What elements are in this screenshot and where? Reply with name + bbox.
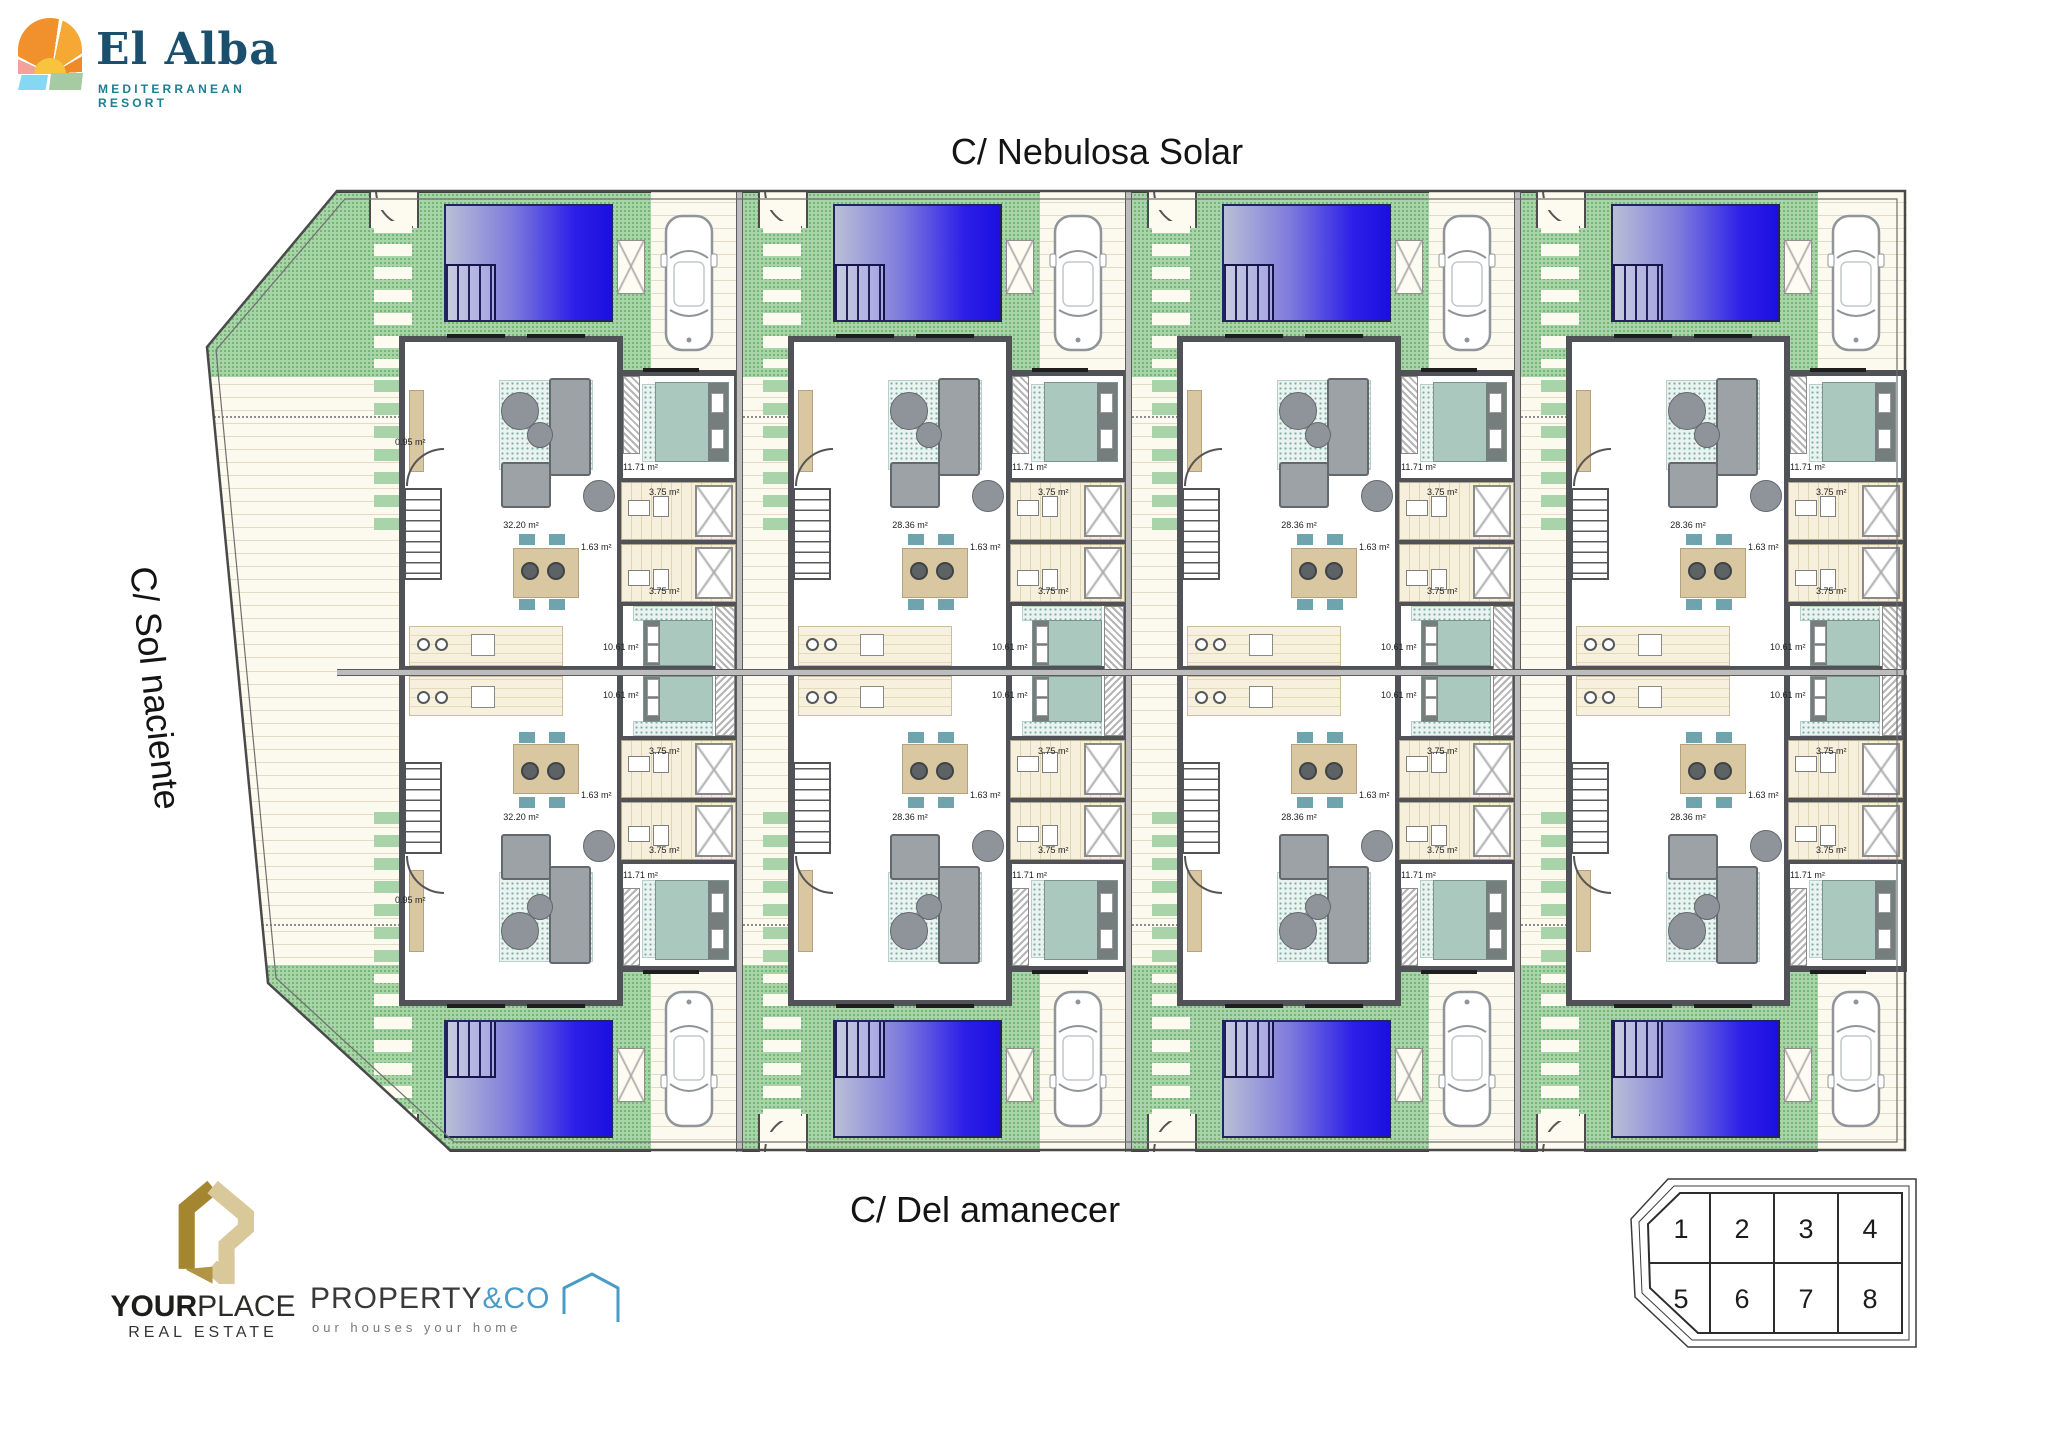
sun-lounger: [1784, 1048, 1812, 1102]
partition-wall: [1399, 798, 1514, 802]
area-label-living: 28.36 m²: [1638, 812, 1738, 822]
window: [1694, 1004, 1752, 1008]
sun-lounger: [617, 1048, 645, 1102]
place-setting: [936, 762, 954, 780]
double-bed: [655, 382, 729, 462]
double-bed: [1822, 382, 1896, 462]
side-table: [916, 894, 942, 920]
toilet: [1017, 500, 1039, 516]
street-label-south: C/ Del amanecer: [850, 1189, 1120, 1231]
plot-5: 32.20 m² 0.95 m² 11.71 m²: [207, 670, 740, 1152]
pillow: [1425, 645, 1437, 663]
stove-burner: [435, 638, 448, 651]
pool-steps: [835, 1022, 885, 1078]
parked-car-icon: [1827, 988, 1885, 1130]
wardrobe: [623, 888, 640, 966]
double-bed: [1810, 620, 1880, 666]
propertyco-name-accent: &CO: [483, 1282, 551, 1315]
wardrobe: [1012, 376, 1029, 454]
area-label-bath: 3.75 m²: [1816, 487, 1847, 497]
area-label-living: 28.36 m²: [860, 812, 960, 822]
dining-chair: [549, 534, 565, 545]
double-bed: [1433, 382, 1507, 462]
armchair: [1361, 830, 1393, 862]
dining-chair: [1686, 599, 1702, 610]
window: [1032, 368, 1088, 372]
stove-burner: [806, 638, 819, 651]
area-label-living: 28.36 m²: [1249, 812, 1349, 822]
wardrobe: [1790, 888, 1807, 966]
plot-1: 32.20 m² 0.95 m² 11.71 m²: [207, 190, 740, 672]
partition-wall: [1788, 736, 1903, 740]
bedroom-rug: [1411, 606, 1491, 621]
swimming-pool: [444, 1020, 613, 1138]
kitchen-sink: [471, 686, 495, 708]
toilet: [1406, 570, 1428, 586]
area-label-living: 28.36 m²: [1638, 520, 1738, 530]
key-plot-3: 3: [1774, 1193, 1838, 1263]
area-label-living: 32.20 m²: [471, 520, 571, 530]
partition-wall: [1010, 860, 1125, 864]
gate-door-swing: [375, 1114, 413, 1152]
yourplace-house-icon: [150, 1172, 260, 1284]
window: [916, 1004, 974, 1008]
shower-tray: [1084, 743, 1122, 795]
wardrobe: [1104, 672, 1124, 736]
dining-chair: [1297, 534, 1313, 545]
toilet: [628, 500, 650, 516]
area-label-bedroom-main: 11.71 m²: [1401, 870, 1436, 880]
place-setting: [1688, 562, 1706, 580]
pillow: [1100, 893, 1113, 913]
pool-steps: [446, 264, 496, 320]
area-label-bath: 3.75 m²: [1038, 746, 1069, 756]
wardrobe: [1401, 376, 1418, 454]
staircase: [1571, 488, 1609, 580]
sofa: [1668, 462, 1718, 508]
bedroom-rug: [1800, 606, 1880, 621]
staircase: [1182, 762, 1220, 854]
toilet: [628, 756, 650, 772]
dining-chair: [908, 599, 924, 610]
area-label-bath: 3.75 m²: [1038, 487, 1069, 497]
stove-burner: [1602, 691, 1615, 704]
toilet: [1406, 500, 1428, 516]
pillow: [1814, 698, 1826, 716]
el-alba-logo: El Alba MEDITERRANEAN RESORT: [16, 10, 316, 110]
window: [447, 334, 505, 338]
swimming-pool: [833, 204, 1002, 322]
area-label-hall: 1.63 m²: [970, 790, 1001, 800]
area-label-bedroom-main: 11.71 m²: [1790, 870, 1825, 880]
sea-band-shape: [18, 75, 48, 90]
double-bed: [1421, 620, 1491, 666]
double-bed: [1810, 676, 1880, 722]
dining-chair: [938, 599, 954, 610]
place-setting: [547, 562, 565, 580]
pillow: [647, 645, 659, 663]
wardrobe: [623, 376, 640, 454]
yourplace-subtitle: REAL ESTATE: [88, 1324, 318, 1342]
stove-burner: [1213, 638, 1226, 651]
partition-wall: [1788, 798, 1903, 802]
stove-burner: [1195, 691, 1208, 704]
parked-car-icon: [660, 988, 718, 1130]
bedroom-rug: [633, 606, 713, 621]
place-setting: [521, 562, 539, 580]
pillow: [1425, 679, 1437, 697]
window: [836, 1004, 894, 1008]
dining-chair: [938, 732, 954, 743]
swimming-pool: [833, 1020, 1002, 1138]
pillow: [647, 698, 659, 716]
key-plot-5: 5: [1652, 1263, 1710, 1333]
side-table: [1694, 894, 1720, 920]
plot-body: 28.36 m² 11.71 m²: [1129, 670, 1518, 1152]
double-bed: [1032, 676, 1102, 722]
sofa: [501, 834, 551, 880]
dining-chair: [1716, 534, 1732, 545]
dining-chair: [908, 732, 924, 743]
propertyco-name-dark: PROPERTY: [310, 1282, 483, 1315]
partition-wall: [621, 478, 736, 482]
partition-wall: [621, 602, 736, 606]
dining-chair: [1297, 797, 1313, 808]
sun-lounger: [1006, 1048, 1034, 1102]
kitchen-sink: [1638, 686, 1662, 708]
dining-chair: [1297, 599, 1313, 610]
place-setting: [910, 762, 928, 780]
area-label-bath: 3.75 m²: [1816, 845, 1847, 855]
sofa: [549, 866, 591, 964]
window: [643, 970, 699, 974]
partition-wall: [1399, 602, 1514, 606]
area-label-bath: 3.75 m²: [1816, 746, 1847, 756]
toilet: [1795, 756, 1817, 772]
shower-tray: [1862, 547, 1900, 599]
area-label-bath: 3.75 m²: [649, 845, 680, 855]
area-label-bath: 3.75 m²: [1427, 586, 1458, 596]
key-plot-1: 1: [1652, 1193, 1710, 1263]
dining-chair: [549, 797, 565, 808]
plot-key-diagram: 12345678: [1622, 1176, 1924, 1354]
party-wall-horizontal: [337, 669, 1907, 676]
swimming-pool: [1222, 204, 1391, 322]
sofa: [549, 378, 591, 476]
armchair: [583, 830, 615, 862]
area-label-bath: 3.75 m²: [1427, 845, 1458, 855]
toilet: [1406, 826, 1428, 842]
staircase: [793, 488, 831, 580]
dining-chair: [519, 599, 535, 610]
place-setting: [910, 562, 928, 580]
place-setting: [547, 762, 565, 780]
pillow: [1878, 893, 1891, 913]
area-label-bedroom-second: 10.61 m²: [1770, 642, 1806, 652]
partition-wall: [1010, 478, 1125, 482]
side-table: [916, 422, 942, 448]
staircase: [404, 488, 442, 580]
bedroom-rug: [1800, 721, 1880, 736]
plot-8: 28.36 m² 11.71 m²: [1518, 670, 1907, 1152]
place-setting: [1325, 762, 1343, 780]
pillow: [711, 929, 724, 949]
window: [1225, 1004, 1283, 1008]
area-label-hall: 1.63 m²: [581, 790, 612, 800]
stove-burner: [1213, 691, 1226, 704]
plot-3: 28.36 m² 11.71 m²: [1129, 190, 1518, 672]
window: [447, 1004, 505, 1008]
staircase: [793, 762, 831, 854]
kitchen-sink: [860, 686, 884, 708]
toilet: [1017, 570, 1039, 586]
key-plot-6: 6: [1710, 1263, 1774, 1333]
side-table: [527, 422, 553, 448]
kitchen-sink: [1638, 634, 1662, 656]
double-bed: [1433, 880, 1507, 960]
shower-tray: [1473, 547, 1511, 599]
pillow: [711, 893, 724, 913]
side-table: [1305, 422, 1331, 448]
swimming-pool: [1611, 204, 1780, 322]
wardrobe: [1790, 376, 1807, 454]
bedroom-rug: [1022, 606, 1102, 621]
wardrobe: [715, 672, 735, 736]
pillow: [1036, 698, 1048, 716]
pillow: [1489, 429, 1502, 449]
toilet: [1017, 826, 1039, 842]
area-label-bath: 3.75 m²: [649, 586, 680, 596]
area-label-living: 28.36 m²: [860, 520, 960, 530]
shower-tray: [1473, 485, 1511, 537]
side-table: [527, 894, 553, 920]
stove-burner: [417, 691, 430, 704]
shower-tray: [695, 547, 733, 599]
toilet: [1017, 756, 1039, 772]
staircase: [1182, 488, 1220, 580]
kitchen-sink: [471, 634, 495, 656]
toilet: [628, 570, 650, 586]
partition-wall: [1399, 478, 1514, 482]
key-plot-2: 2: [1710, 1193, 1774, 1263]
wardrobe: [1493, 672, 1513, 736]
shower-tray: [1084, 547, 1122, 599]
yourplace-name: YOURPLACE: [88, 1290, 318, 1324]
wardrobe: [1401, 888, 1418, 966]
pillow: [1878, 393, 1891, 413]
sofa: [1716, 866, 1758, 964]
dining-chair: [1297, 732, 1313, 743]
propertyco-tagline: our houses your home: [312, 1320, 521, 1335]
dining-chair: [1686, 797, 1702, 808]
double-bed: [1421, 676, 1491, 722]
partition-wall: [1010, 798, 1125, 802]
area-label-bedroom-main: 11.71 m²: [1401, 462, 1436, 472]
shower-tray: [1473, 743, 1511, 795]
toilet: [1795, 826, 1817, 842]
pillow: [1036, 679, 1048, 697]
place-setting: [1299, 762, 1317, 780]
area-label-bedroom-second: 10.61 m²: [992, 690, 1028, 700]
plot-body: 28.36 m² 11.71 m²: [1129, 190, 1518, 672]
pillow: [1425, 626, 1437, 644]
armchair: [1361, 480, 1393, 512]
sofa: [890, 834, 940, 880]
pillow: [1489, 893, 1502, 913]
shower-tray: [1862, 743, 1900, 795]
brand-name: El Alba: [96, 24, 279, 75]
plot-4: 28.36 m² 11.71 m²: [1518, 190, 1907, 672]
pillow: [647, 679, 659, 697]
area-label-bedroom-second: 10.61 m²: [603, 690, 639, 700]
dining-chair: [1327, 599, 1343, 610]
propertyco-house-icon: [562, 1270, 642, 1330]
shower-tray: [1084, 805, 1122, 857]
pillow: [1814, 679, 1826, 697]
pillow: [1100, 429, 1113, 449]
window: [527, 334, 585, 338]
pillow: [1036, 645, 1048, 663]
stove-burner: [1584, 638, 1597, 651]
window: [1032, 970, 1088, 974]
stove-burner: [824, 691, 837, 704]
propertyco-name: PROPERTY&CO: [310, 1282, 551, 1316]
double-bed: [643, 620, 713, 666]
area-label-hall: 1.63 m²: [1748, 790, 1779, 800]
partition-wall: [1788, 478, 1903, 482]
plot-body: 28.36 m² 11.71 m²: [1518, 670, 1907, 1152]
dining-chair: [938, 797, 954, 808]
parked-car-icon: [660, 212, 718, 354]
sofa: [938, 378, 980, 476]
bedroom-rug: [1022, 721, 1102, 736]
swimming-pool: [1611, 1020, 1780, 1138]
plot-body: 32.20 m² 0.95 m² 11.71 m²: [351, 670, 740, 1152]
dining-chair: [519, 534, 535, 545]
dining-chair: [1327, 534, 1343, 545]
dining-chair: [1327, 797, 1343, 808]
window: [1614, 334, 1672, 338]
plot-body: 28.36 m² 11.71 m²: [1518, 190, 1907, 672]
swimming-pool: [1222, 1020, 1391, 1138]
window: [527, 1004, 585, 1008]
dining-chair: [1327, 732, 1343, 743]
window: [1810, 368, 1866, 372]
kitchen-sink: [1249, 686, 1273, 708]
partition-wall: [1010, 736, 1125, 740]
washbasin: [1820, 496, 1836, 517]
area-label-living: 32.20 m²: [471, 812, 571, 822]
toilet: [628, 826, 650, 842]
window: [836, 334, 894, 338]
sofa: [938, 866, 980, 964]
pillow: [1878, 929, 1891, 949]
plot-body: 28.36 m² 11.71 m²: [740, 190, 1129, 672]
parked-car-icon: [1827, 212, 1885, 354]
propertyco-logo: PROPERTY&CO our houses your home: [310, 1282, 640, 1362]
shower-tray: [695, 485, 733, 537]
side-table: [1305, 894, 1331, 920]
partition-wall: [1399, 540, 1514, 544]
kitchen-sink: [1249, 634, 1273, 656]
pillow: [711, 393, 724, 413]
pillow: [711, 429, 724, 449]
parked-car-icon: [1438, 988, 1496, 1130]
parked-car-icon: [1049, 988, 1107, 1130]
sun-lounger: [1784, 240, 1812, 294]
pool-steps: [1613, 264, 1663, 320]
area-label-bath: 3.75 m²: [1038, 586, 1069, 596]
area-label-bedroom-main: 11.71 m²: [623, 462, 658, 472]
window: [1810, 970, 1866, 974]
pillow: [1814, 645, 1826, 663]
area-label-bath: 3.75 m²: [1427, 487, 1458, 497]
toilet: [1406, 756, 1428, 772]
shower-tray: [695, 805, 733, 857]
double-bed: [655, 880, 729, 960]
side-table: [1694, 422, 1720, 448]
plot-2: 28.36 m² 11.71 m²: [740, 190, 1129, 672]
partition-wall: [621, 860, 736, 864]
stove-burner: [824, 638, 837, 651]
street-label-north: C/ Nebulosa Solar: [951, 131, 1243, 173]
key-plot-7: 7: [1774, 1263, 1838, 1333]
place-setting: [521, 762, 539, 780]
washbasin: [1820, 825, 1836, 846]
dining-chair: [1686, 534, 1702, 545]
sun-lounger: [617, 240, 645, 294]
armchair: [1750, 480, 1782, 512]
pool-steps: [1224, 1022, 1274, 1078]
dining-chair: [1716, 732, 1732, 743]
area-label-living: 28.36 m²: [1249, 520, 1349, 530]
armchair: [1750, 830, 1782, 862]
partition-wall: [1788, 602, 1903, 606]
sun-lounger: [1395, 1048, 1423, 1102]
washbasin: [653, 825, 669, 846]
brand-subtitle: MEDITERRANEAN RESORT: [98, 82, 316, 110]
staircase: [1571, 762, 1609, 854]
partition-wall: [1399, 860, 1514, 864]
window: [1614, 1004, 1672, 1008]
plots-layer: 32.20 m² 0.95 m² 11.71 m²: [207, 190, 1907, 1152]
partition-wall: [621, 540, 736, 544]
area-label-bedroom-second: 10.61 m²: [1381, 690, 1417, 700]
sofa: [1327, 866, 1369, 964]
shower-tray: [1862, 805, 1900, 857]
key-plot-8: 8: [1838, 1263, 1902, 1333]
dining-chair: [549, 732, 565, 743]
dining-chair: [519, 797, 535, 808]
area-label-bedroom-main: 11.71 m²: [1012, 462, 1047, 472]
dining-chair: [1716, 797, 1732, 808]
area-label-bedroom-second: 10.61 m²: [992, 642, 1028, 652]
area-label-bath: 3.75 m²: [1816, 586, 1847, 596]
sofa: [1327, 378, 1369, 476]
double-bed: [1032, 620, 1102, 666]
entrance-gate: [369, 1114, 419, 1152]
partition-wall: [621, 798, 736, 802]
double-bed: [1044, 382, 1118, 462]
key-plot-4: 4: [1838, 1193, 1902, 1263]
washbasin: [1431, 496, 1447, 517]
area-label-bath: 3.75 m²: [1427, 746, 1458, 756]
plot-body: 32.20 m² 0.95 m² 11.71 m²: [351, 190, 740, 672]
staircase: [404, 762, 442, 854]
sofa: [1279, 462, 1329, 508]
wardrobe: [1882, 606, 1902, 670]
dining-chair: [1716, 599, 1732, 610]
